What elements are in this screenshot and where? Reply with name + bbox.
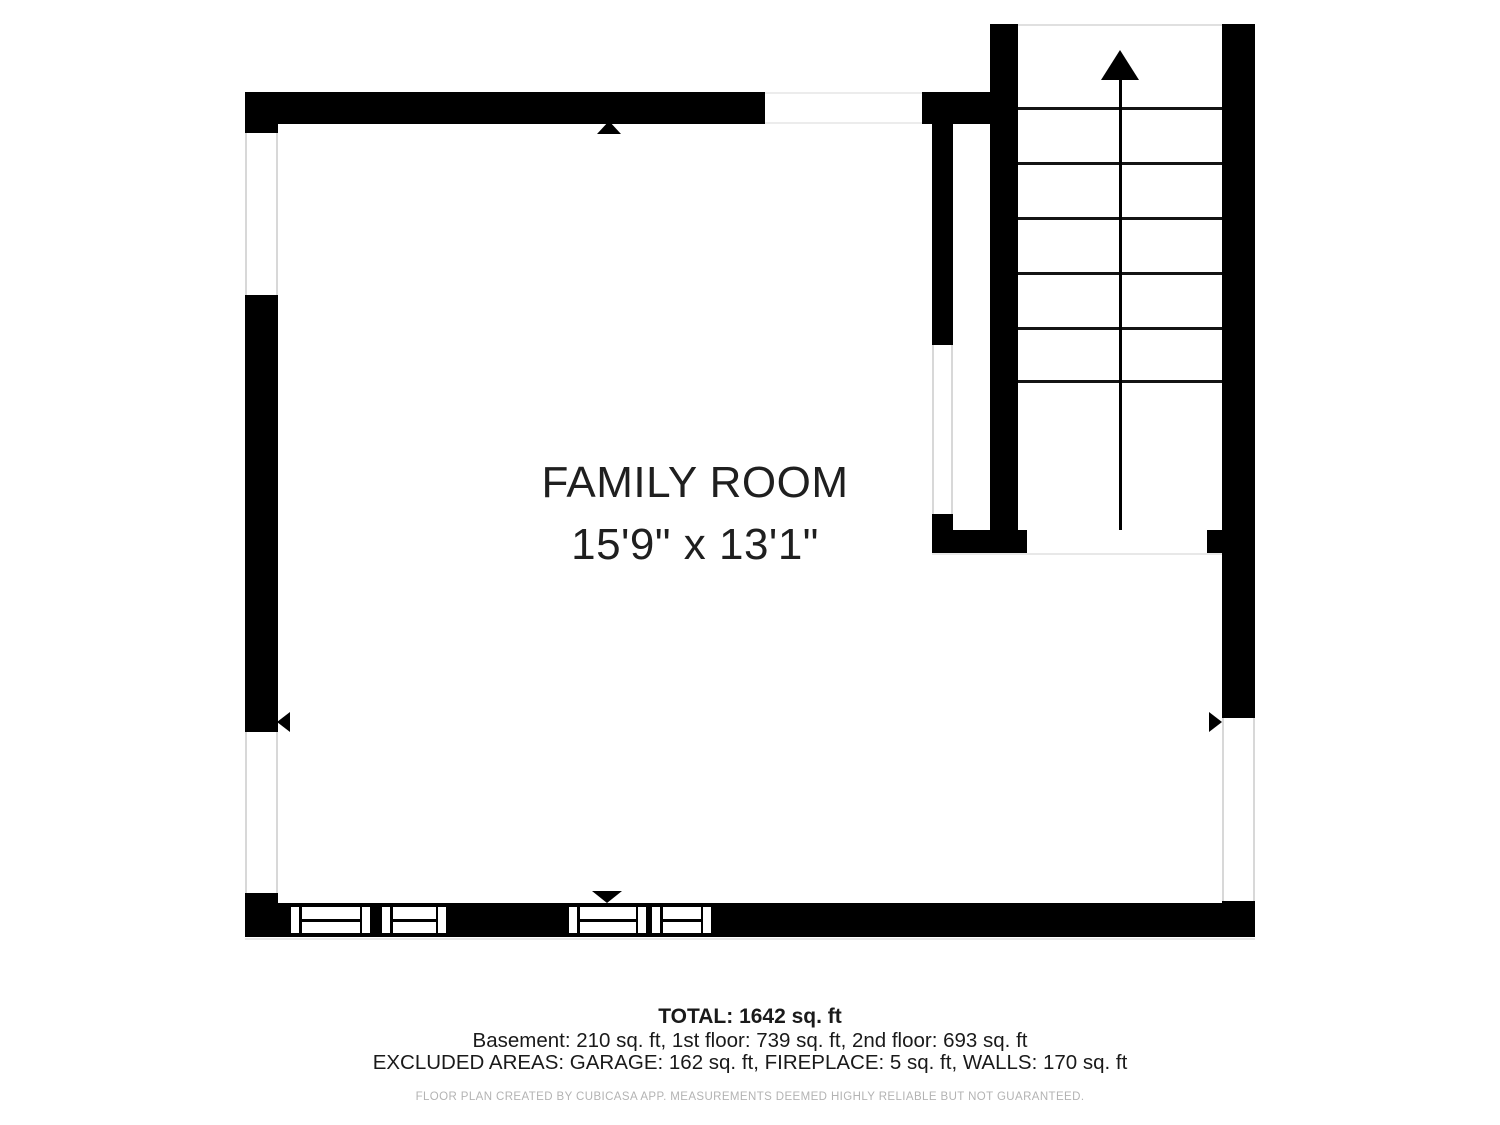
bottom-window-unit (567, 905, 648, 935)
excluded-areas-text: EXCLUDED AREAS: GARAGE: 162 sq. ft, FIRE… (0, 1052, 1500, 1075)
stair-top-boundary-line (990, 24, 1255, 26)
total-area-text: TOTAL: 1642 sq. ft (0, 1006, 1500, 1029)
bottom-window-unit (380, 905, 448, 935)
right-window-marker-icon (1209, 712, 1222, 732)
bottom-window-unit (650, 905, 713, 935)
creator-credit-text: FLOOR PLAN CREATED BY CUBICASA APP. MEAS… (0, 1086, 1500, 1109)
wall-right-bottom-corner (1222, 901, 1255, 937)
window-pane-line (662, 919, 701, 922)
wall-top-left-segment (245, 92, 765, 124)
stair-bottom-wall-right (1207, 530, 1255, 553)
wall-right (1222, 24, 1255, 718)
wall-left-middle-segment (245, 295, 278, 732)
area-summary: TOTAL: 1642 sq. ft Basement: 210 sq. ft,… (0, 1006, 1500, 1108)
room-label: FAMILY ROOM 15'9" x 13'1" (395, 452, 995, 576)
window-left-lower (245, 732, 278, 893)
wall-left-upper-segment (245, 92, 278, 133)
window-right (1222, 718, 1255, 901)
window-pane-line (392, 919, 436, 922)
floor-areas-text: Basement: 210 sq. ft, 1st floor: 739 sq.… (0, 1030, 1500, 1053)
room-name: FAMILY ROOM (395, 452, 995, 514)
window-left-upper (245, 133, 278, 295)
window-pane-line (301, 919, 360, 922)
wall-top-opening (765, 92, 922, 124)
left-window-marker-icon (277, 712, 290, 732)
up-arrow-icon (1101, 50, 1139, 80)
window-pane-line (579, 919, 636, 922)
room-dimensions: 15'9" x 13'1" (395, 514, 995, 576)
top-entry-marker-icon (597, 121, 621, 134)
floor-plan-page: FAMILY ROOM 15'9" x 13'1" TOTAL: 1642 sq… (0, 0, 1500, 1125)
stair-direction-up-arrow-shaft (1119, 78, 1122, 530)
bottom-entry-marker-icon (592, 891, 622, 903)
partition-wall-upper (932, 124, 953, 345)
bottom-window-unit (289, 905, 372, 935)
bottom-wall-shadow-line (245, 938, 1255, 940)
